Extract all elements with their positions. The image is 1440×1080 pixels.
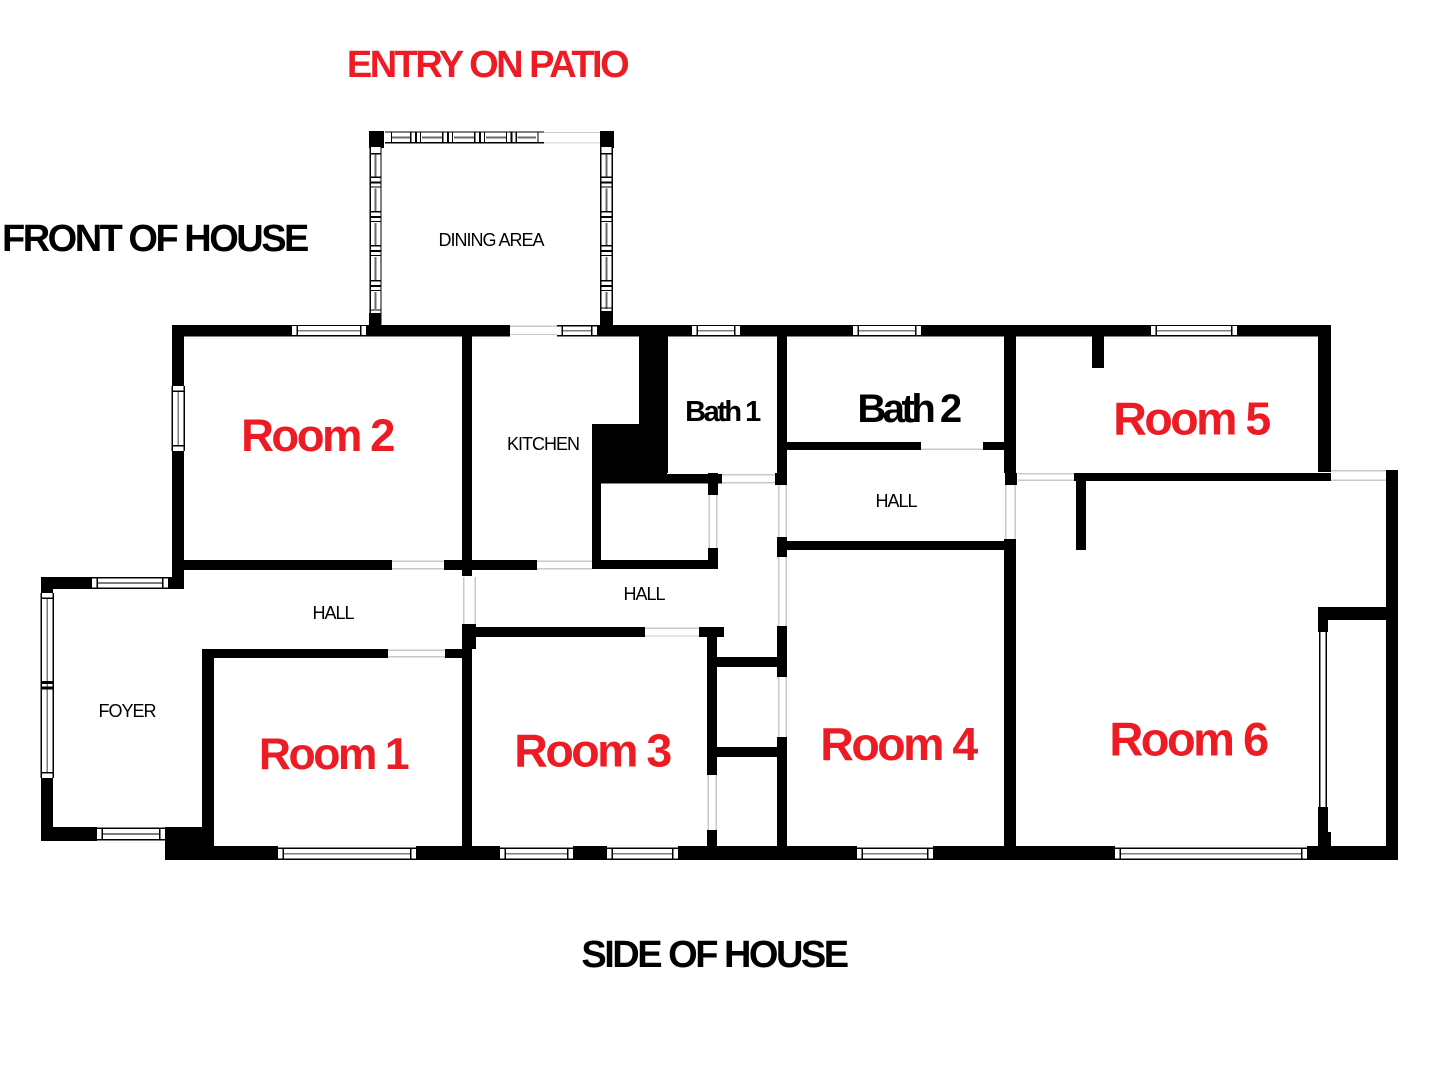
- svg-text:Bath 1: Bath 1: [685, 396, 761, 428]
- svg-text:Room 2: Room 2: [241, 410, 394, 461]
- svg-text:FOYER: FOYER: [98, 701, 156, 721]
- svg-text:Room 5: Room 5: [1113, 393, 1270, 445]
- svg-text:HALL: HALL: [623, 584, 665, 604]
- svg-text:SIDE OF HOUSE: SIDE OF HOUSE: [581, 934, 847, 976]
- svg-text:DINING AREA: DINING AREA: [438, 230, 544, 250]
- svg-text:Bath 2: Bath 2: [857, 387, 961, 431]
- svg-text:Room 3: Room 3: [514, 725, 671, 777]
- svg-text:FRONT OF HOUSE: FRONT OF HOUSE: [2, 218, 308, 260]
- svg-text:ENTRY ON PATIO: ENTRY ON PATIO: [347, 44, 628, 86]
- svg-text:HALL: HALL: [312, 603, 354, 623]
- svg-text:Room 6: Room 6: [1109, 713, 1268, 766]
- svg-text:Room 4: Room 4: [820, 718, 978, 770]
- svg-text:Room 1: Room 1: [259, 730, 409, 779]
- svg-text:KITCHEN: KITCHEN: [507, 434, 579, 454]
- svg-text:HALL: HALL: [875, 491, 917, 511]
